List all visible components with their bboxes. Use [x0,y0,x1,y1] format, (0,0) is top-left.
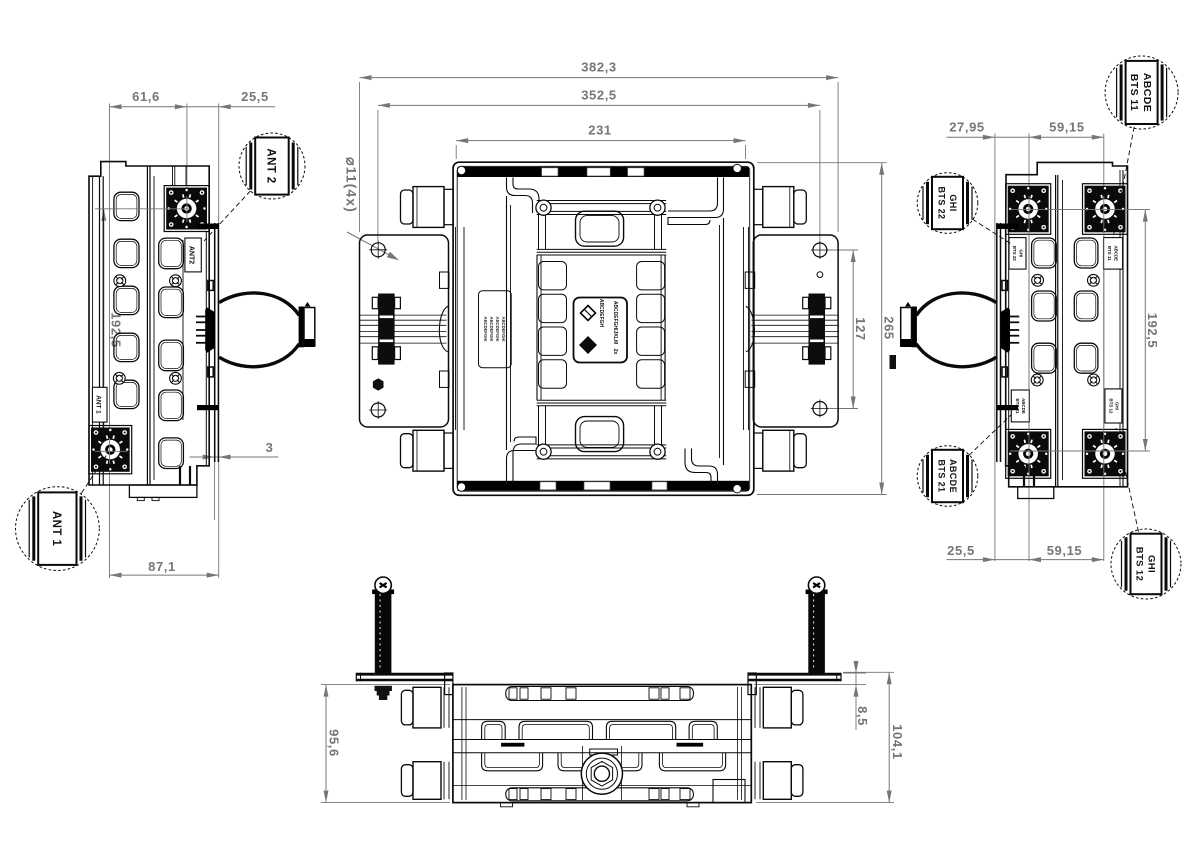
svg-text:BTS 22: BTS 22 [936,187,946,220]
svg-text:8,5: 8,5 [855,706,870,726]
svg-text:ANT 2: ANT 2 [265,148,277,183]
svg-text:2x: 2x [612,349,618,355]
svg-text:ABCDEFGHI: ABCDEFGHI [495,317,500,342]
svg-text:BTS 21: BTS 21 [936,460,946,493]
svg-text:ABCDEFGHI: ABCDEFGHI [501,317,506,342]
svg-text:ABCDEFGHI: ABCDEFGHI [483,317,488,342]
svg-text:ABCDE: ABCDE [1141,73,1153,112]
svg-text:25,5: 25,5 [241,89,269,104]
svg-text:59,15: 59,15 [1049,119,1085,134]
svg-text:⌀11(4x): ⌀11(4x) [344,157,360,213]
svg-text:231: 231 [588,123,612,138]
svg-text:BTS 12: BTS 12 [1133,547,1144,582]
svg-text:87,1: 87,1 [148,559,176,574]
svg-text:95,6: 95,6 [327,729,342,757]
svg-text:ABCDEFGHIJKLM: ABCDEFGHIJKLM [612,301,618,344]
svg-text:61,6: 61,6 [132,89,160,104]
svg-text:104,1: 104,1 [890,724,905,760]
svg-text:59,15: 59,15 [1047,543,1083,558]
svg-text:ABCDE: ABCDE [948,459,958,493]
svg-text:ABCDE: ABCDE [1114,245,1119,261]
svg-text:192,5: 192,5 [1145,313,1160,349]
svg-text:ABCDEFGH: ABCDEFGH [598,299,604,328]
svg-text:382,3: 382,3 [581,60,617,75]
svg-text:GHI: GHI [1019,249,1024,257]
svg-text:ANT 1: ANT 1 [95,395,102,414]
svg-text:127: 127 [853,317,868,341]
svg-text:BTS 22: BTS 22 [1012,246,1017,261]
svg-text:352,5: 352,5 [581,87,617,102]
svg-text:GHI: GHI [948,194,958,211]
svg-text:BTS 11: BTS 11 [1107,246,1112,261]
svg-text:ABCDE: ABCDE [1021,398,1026,414]
svg-text:265: 265 [882,316,897,340]
svg-text:3: 3 [266,440,274,455]
svg-text:BTS 12: BTS 12 [1108,399,1113,414]
svg-text:27,95: 27,95 [949,119,985,134]
svg-text:25,5: 25,5 [947,543,975,558]
svg-text:ANT2: ANT2 [188,246,195,264]
svg-text:BTS 11: BTS 11 [1128,74,1140,111]
svg-text:ANT 1: ANT 1 [50,511,62,546]
svg-text:GHI: GHI [1115,402,1120,410]
svg-text:GHI: GHI [1145,555,1156,573]
svg-text:ABCDEFGHI: ABCDEFGHI [489,317,494,342]
